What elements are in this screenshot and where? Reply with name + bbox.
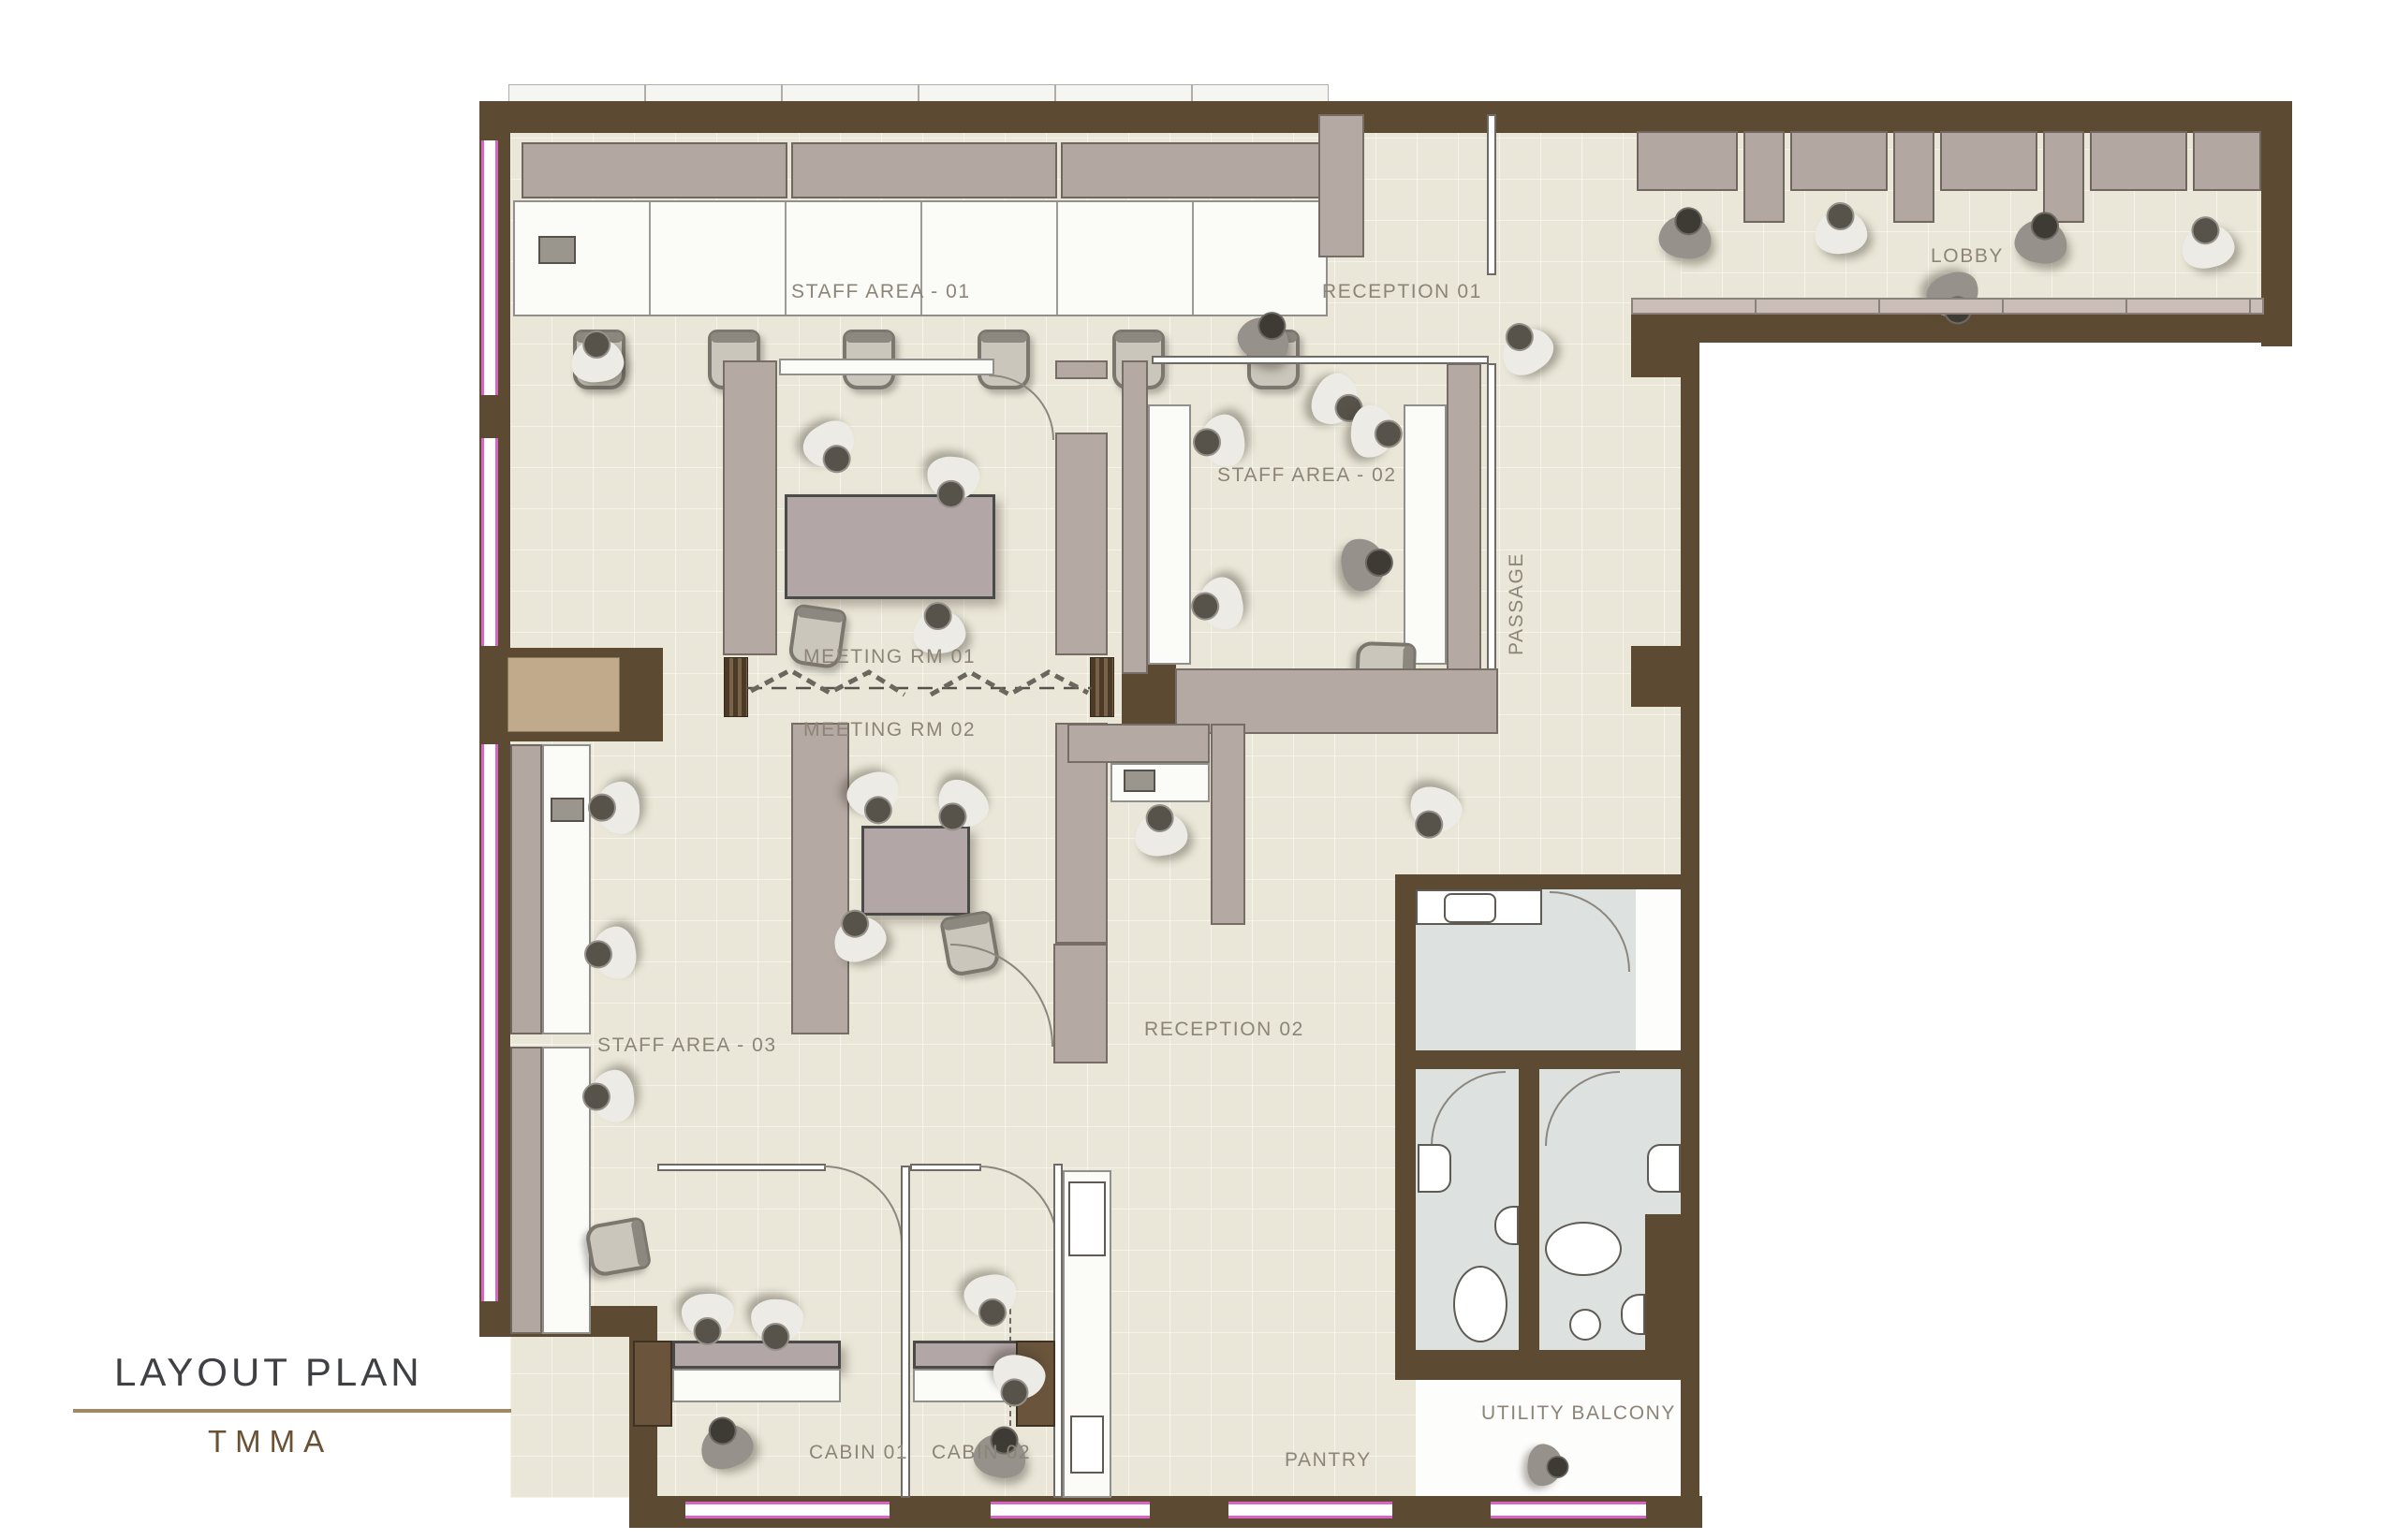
reception2-partition-h [1067, 724, 1210, 763]
label-passage: PASSAGE [1506, 552, 1528, 655]
meeting1-left-wall [723, 360, 777, 655]
drawing-title: LAYOUT PLAN [114, 1350, 423, 1395]
cabin1-side-cabinet [633, 1341, 672, 1427]
staff2-desk-right [1404, 404, 1447, 665]
meeting1-right-wall [1055, 433, 1108, 655]
label-utility-balcony: UTILITY BALCONY [1481, 1402, 1676, 1425]
shower-drain [1569, 1309, 1601, 1341]
left-window [481, 140, 498, 395]
left-window [481, 438, 498, 646]
lobby-cubicle-panel [1893, 131, 1934, 223]
title-rule [73, 1409, 511, 1413]
lobby-cubicle-panel [2090, 131, 2187, 191]
overhead-cabinet [791, 142, 1057, 198]
staff2-desk-left [1148, 404, 1191, 665]
lobby-cubicle-panel [1743, 131, 1785, 223]
reception2-partition-v [1211, 724, 1245, 925]
reception-divider-panel [1318, 114, 1364, 257]
cabin1-desk-top [672, 1341, 841, 1369]
meeting2-left-wall [791, 723, 849, 1034]
toilet-wc [1545, 1222, 1622, 1276]
label-cabin-01: CABIN 01 [809, 1442, 908, 1464]
laptop [538, 236, 576, 264]
label-meeting-rm-02: MEETING RM 02 [803, 719, 976, 741]
label-staff-area-02: STAFF AREA - 02 [1217, 464, 1397, 487]
meeting2-door-pier [1053, 944, 1108, 1063]
label-cabin-02: CABIN 02 [932, 1442, 1031, 1464]
overhead-cabinet [522, 142, 787, 198]
meeting1-table [785, 494, 995, 599]
niche-inset [507, 657, 620, 732]
pantry-appliance [1068, 1181, 1106, 1256]
staff2-top-wall [1152, 356, 1489, 364]
sink [1444, 893, 1496, 923]
wing-east-wall [2261, 101, 2292, 346]
label-staff-area-03: STAFF AREA - 03 [597, 1034, 777, 1057]
passage-wall-lower [1487, 363, 1496, 672]
toilet-wall-notch [1645, 1214, 1681, 1350]
toilet-wc [1453, 1266, 1507, 1342]
lobby-cubicle-panel [2043, 131, 2084, 223]
staff3-cabinet-strip [510, 1047, 542, 1334]
bottom-window [1491, 1502, 1646, 1518]
staff2-left-wall [1122, 360, 1148, 674]
meeting2-table [861, 826, 970, 916]
passage-wall-upper [1487, 114, 1496, 275]
label-reception-02: RECEPTION 02 [1144, 1019, 1304, 1041]
staff3-cabinet-strip [510, 744, 542, 1034]
overhead-cabinet [1061, 142, 1328, 198]
top-wall [479, 101, 2292, 133]
lobby-cubicle-panel [1790, 131, 1888, 191]
meeting1-right-wall-stub [1055, 360, 1108, 379]
lobby-cubicle-panel [1637, 131, 1738, 191]
office-chair [584, 1216, 653, 1278]
pantry-divider-wall [1053, 1164, 1063, 1498]
wash-basin [1647, 1144, 1681, 1193]
folded-partition-stack [1090, 657, 1114, 717]
bottom-window [685, 1502, 890, 1518]
cabin1-desk [672, 1369, 841, 1402]
meeting1-credenza [779, 359, 994, 375]
bottom-window [1228, 1502, 1392, 1518]
right-wall-pilaster [1631, 646, 1681, 707]
floor-plan-canvas: STAFF AREA - 01 RECEPTION 01 LOBBY PASSA… [0, 0, 2397, 1540]
left-window [481, 744, 498, 1301]
folding-partition-zigzag [747, 655, 1092, 721]
top-glazing-strip [508, 84, 1329, 103]
label-reception-01: RECEPTION 01 [1322, 281, 1482, 303]
pantry-appliance [1070, 1415, 1104, 1474]
label-pantry: PANTRY [1285, 1449, 1372, 1472]
cabin1-top-wall [657, 1164, 826, 1171]
laptop [1124, 770, 1155, 792]
cabin2-top-wall [910, 1164, 981, 1171]
drawing-subtitle: TMMA [208, 1424, 332, 1459]
laptop [551, 798, 584, 822]
folded-partition-stack [724, 657, 748, 717]
label-staff-area-01: STAFF AREA - 01 [791, 281, 971, 303]
lobby-counter [1631, 298, 2264, 315]
wash-basin [1418, 1144, 1451, 1193]
bottom-window [991, 1502, 1150, 1518]
label-lobby: LOBBY [1931, 245, 2004, 268]
lobby-cubicle-panel [1940, 131, 2037, 191]
staff2-right-wall [1447, 363, 1481, 672]
service-shaft [1636, 889, 1681, 1050]
staff3-desk [542, 744, 591, 1034]
right-wall-pilaster [1631, 326, 1681, 377]
lobby-cubicle-panel [2193, 131, 2261, 191]
